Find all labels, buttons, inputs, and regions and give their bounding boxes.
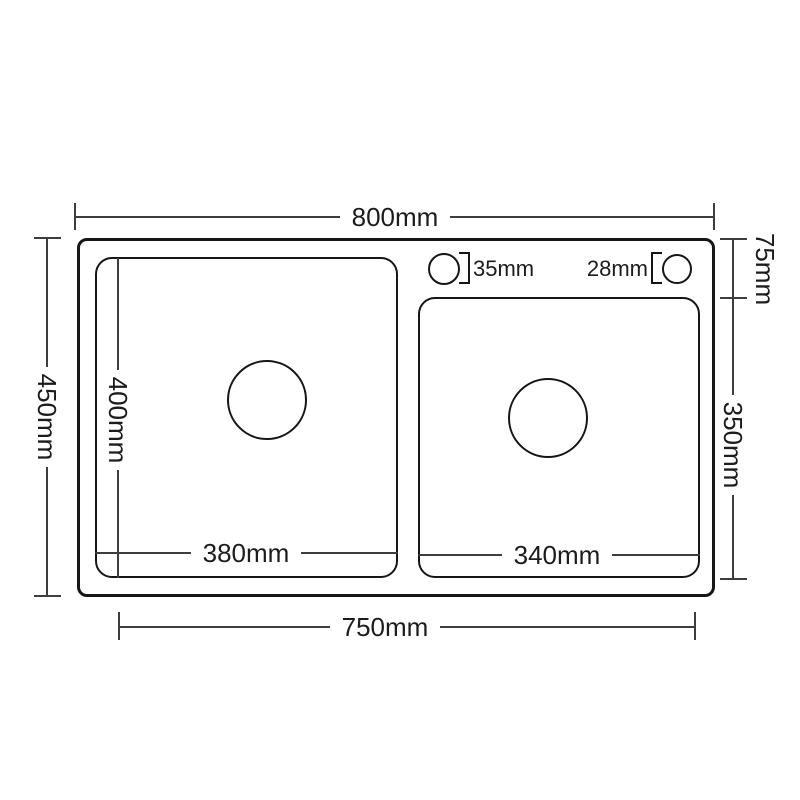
overall-width-left-tick [74,203,76,230]
right-side-bottom-tick [720,578,747,580]
bowl-span-left-tick [118,612,120,640]
bowl-span-label: 750mm [330,613,440,641]
right-side-top-tick [720,238,747,240]
overall-depth-top-tick [34,237,61,239]
left-faucet-diameter-label: 35mm [473,257,534,281]
right-faucet-hole [662,254,692,284]
diameter-bracket-open-icon [651,252,662,284]
right-side-middle-tick [720,297,747,299]
sink-dimension-diagram: 35mm 28mm 800mm 450mm 75mm 350mm 400mm 3… [0,0,800,800]
rim-offset-label: 75mm [751,229,779,309]
overall-depth-bottom-tick [34,595,61,597]
right-bowl-depth-label: 350mm [719,395,747,495]
bowl-span-right-tick [694,612,696,640]
right-drain-hole [508,378,588,458]
overall-width-label: 800mm [340,203,450,231]
left-bowl-width-label: 380mm [191,539,301,567]
overall-depth-label: 450mm [33,367,61,467]
left-bowl-depth-label: 400mm [104,370,132,470]
overall-width-right-tick [713,203,715,230]
left-faucet-hole [428,253,460,285]
left-drain-hole [227,360,307,440]
right-faucet-diameter-label: 28mm [584,257,648,281]
diameter-bracket-close-icon [459,252,470,284]
right-bowl-width-label: 340mm [502,541,612,569]
